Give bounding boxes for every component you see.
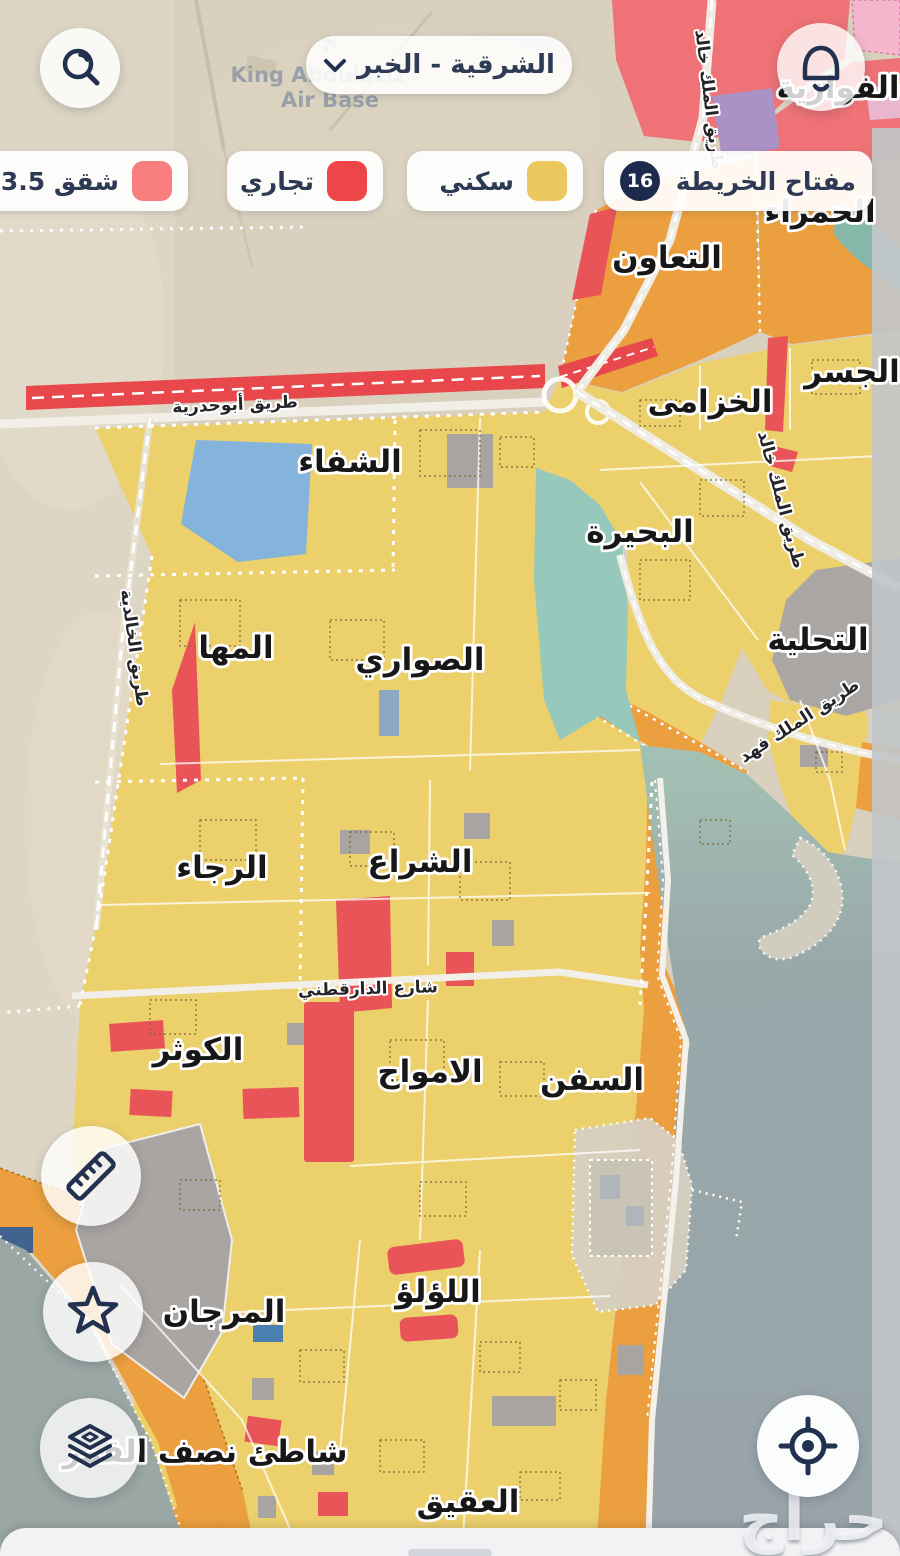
search-button[interactable] [40,28,120,108]
map-edge-band [872,128,900,1556]
district-label-jisr: الجسر [802,354,899,390]
legend-map-key-count-badge: 16 [620,161,660,201]
legend-map-key-label: مفتاح الخريطة [676,167,856,196]
district-label-tahliyah: التحلية [767,622,868,658]
bottom-sheet-handle[interactable] [408,1549,492,1556]
locate-button[interactable] [757,1395,859,1497]
district-label-amwaj: الامواج [377,1054,482,1090]
residential-color-swatch [527,161,567,201]
search-icon [57,45,103,91]
region-selector[interactable]: الشرقية - الخبر [306,36,572,94]
region-selector-label: الشرقية - الخبر [357,50,555,80]
legend-chip-apartments[interactable]: شقق 3.5 م [0,151,188,211]
commercial-color-swatch [327,161,367,201]
district-label-lulu: اللؤلؤ [393,1274,480,1310]
chevron-down-icon [323,53,347,77]
star-icon [64,1283,122,1341]
bell-icon [794,40,848,94]
road-label-daraqutni: شارع الدارقطني [298,977,438,1001]
measure-button[interactable] [41,1126,141,1226]
legend-chip-residential[interactable]: سكني [407,151,583,211]
district-label-raja: الرجاء [176,850,267,886]
favorites-button[interactable] [43,1262,143,1362]
notifications-button[interactable] [777,23,865,111]
legend-chip-commercial-label: تجاري [240,167,314,196]
ruler-icon [63,1148,119,1204]
district-label-khuzama: الخزامى [647,384,772,420]
layers-icon [61,1419,119,1477]
layers-button[interactable] [40,1398,140,1498]
apartments-color-swatch [132,161,172,201]
district-label-taawun: التعاون [612,240,722,276]
district-label-shifa: الشفاء [298,444,402,480]
district-label-shira: الشراع [368,844,473,880]
district-label-kawthar: الكوثر [151,1032,244,1068]
district-label-aqiq: العقيق [417,1484,520,1520]
legend-chip-commercial[interactable]: تجاري [227,151,383,211]
district-label-buhayrah: البحيرة [586,514,694,550]
district-label-sawari: الصواري [355,642,484,678]
crosshair-icon [778,1416,838,1476]
map-screen: ✈ King Abdulaziz Air Base الفوازية الحمر… [0,0,900,1556]
legend-chip-apartments-label: شقق 3.5 م [0,167,119,196]
legend-chip-residential-label: سكني [439,167,514,196]
district-label-sufun: السفن [540,1062,644,1098]
legend-map-key-chip[interactable]: مفتاح الخريطة 16 [604,151,872,211]
district-label-maha: المها [198,630,273,666]
district-label-murjan: المرجان [163,1294,286,1330]
